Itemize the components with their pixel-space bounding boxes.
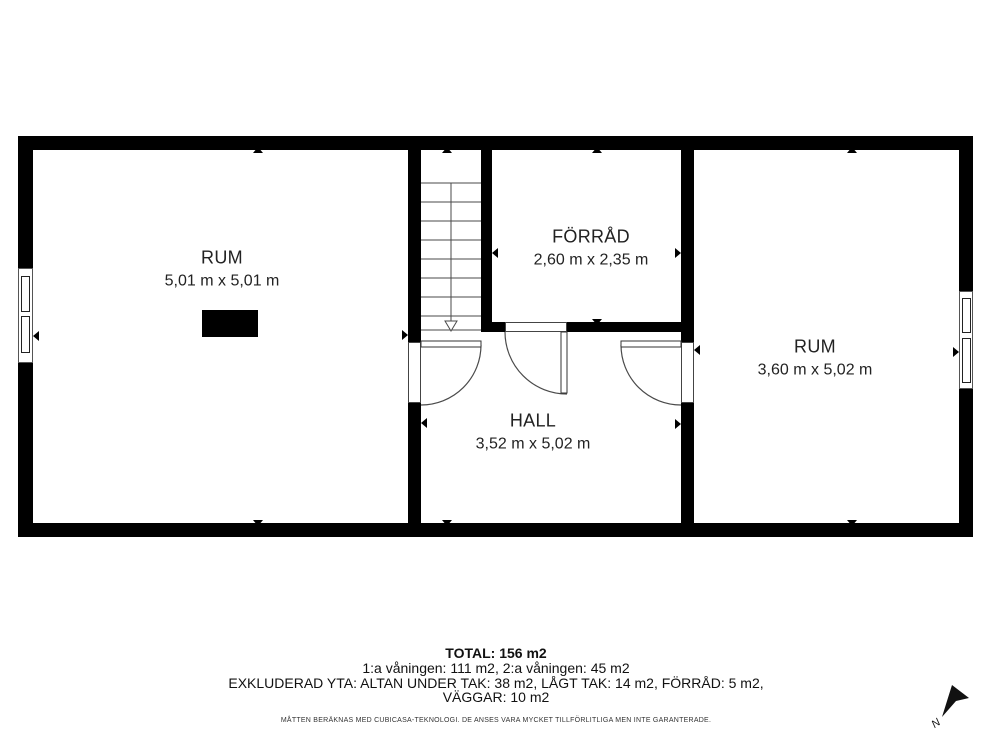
room-dimensions: 3,60 m x 5,02 m <box>758 362 873 380</box>
door-swing-arc <box>505 332 567 394</box>
stair-down-arrow-icon <box>445 321 457 331</box>
door-swing-arc <box>621 345 681 405</box>
wall-marker <box>33 331 39 341</box>
room-dimensions: 5,01 m x 5,01 m <box>165 273 280 291</box>
floorplan-page: N RUM 5,01 m x 5,01 m FÖRRÅD 2,60 m x 2,… <box>0 0 992 744</box>
excluded-areas-2: VÄGGAR: 10 m2 <box>0 690 992 705</box>
chimney <box>202 310 258 337</box>
staircase <box>421 183 481 331</box>
window-left-pane-top <box>21 276 30 312</box>
door-opening-hall-right <box>681 342 694 403</box>
room-name: HALL <box>476 411 591 432</box>
wall-marker <box>592 319 602 325</box>
wall-marker <box>847 147 857 153</box>
wall-storage-bottom-a <box>481 322 505 332</box>
room-label-forrad: FÖRRÅD 2,60 m x 2,35 m <box>534 227 649 270</box>
room-dimensions: 3,52 m x 5,02 m <box>476 436 591 454</box>
wall-marker <box>847 520 857 526</box>
door-swing-arc <box>421 345 481 405</box>
wall-marker <box>253 520 263 526</box>
excluded-areas: EXKLUDERAD YTA: ALTAN UNDER TAK: 38 m2, … <box>0 676 992 691</box>
door-leaf <box>421 341 481 347</box>
wall-left-room-upper <box>408 150 421 342</box>
wall-marker <box>402 330 408 340</box>
window-left-pane-bottom <box>21 316 30 353</box>
wall-marker <box>675 248 681 258</box>
door-leaf <box>561 332 567 393</box>
wall-marker <box>492 248 498 258</box>
wall-outer-bottom <box>18 523 973 537</box>
wall-marker <box>442 520 452 526</box>
wall-marker <box>442 147 452 153</box>
wall-left-room-lower <box>408 403 421 523</box>
wall-marker <box>592 147 602 153</box>
door-leaf <box>621 341 681 347</box>
room-dimensions: 2,60 m x 2,35 m <box>534 252 649 270</box>
wall-marker <box>675 419 681 429</box>
disclaimer: MÅTTEN BERÄKNAS MED CUBICASA-TEKNOLOGI. … <box>0 717 992 724</box>
total-area: TOTAL: 156 m2 <box>0 646 992 661</box>
floor-areas: 1:a våningen: 111 m2, 2:a våningen: 45 m… <box>0 661 992 676</box>
wall-marker <box>953 347 959 357</box>
wall-marker <box>253 147 263 153</box>
door-opening-storage <box>505 322 567 332</box>
room-label-rum-right: RUM 3,60 m x 5,02 m <box>758 337 873 380</box>
room-label-hall: HALL 3,52 m x 5,02 m <box>476 411 591 454</box>
room-name: FÖRRÅD <box>534 227 649 248</box>
window-right-pane-bottom <box>962 338 971 383</box>
wall-right-room-upper <box>681 150 694 342</box>
door-opening-hall-left <box>408 342 421 403</box>
wall-storage-bottom-b <box>567 322 694 332</box>
area-summary: TOTAL: 156 m2 1:a våningen: 111 m2, 2:a … <box>0 646 992 705</box>
doors <box>421 332 681 405</box>
wall-stair-storage <box>481 150 492 322</box>
wall-outer-top <box>18 136 973 150</box>
wall-right-room-lower <box>681 403 694 523</box>
window-right-pane-top <box>962 298 971 333</box>
room-label-rum-left: RUM 5,01 m x 5,01 m <box>165 248 280 291</box>
room-name: RUM <box>758 337 873 358</box>
wall-marker <box>694 345 700 355</box>
wall-marker <box>421 418 427 428</box>
room-name: RUM <box>165 248 280 269</box>
